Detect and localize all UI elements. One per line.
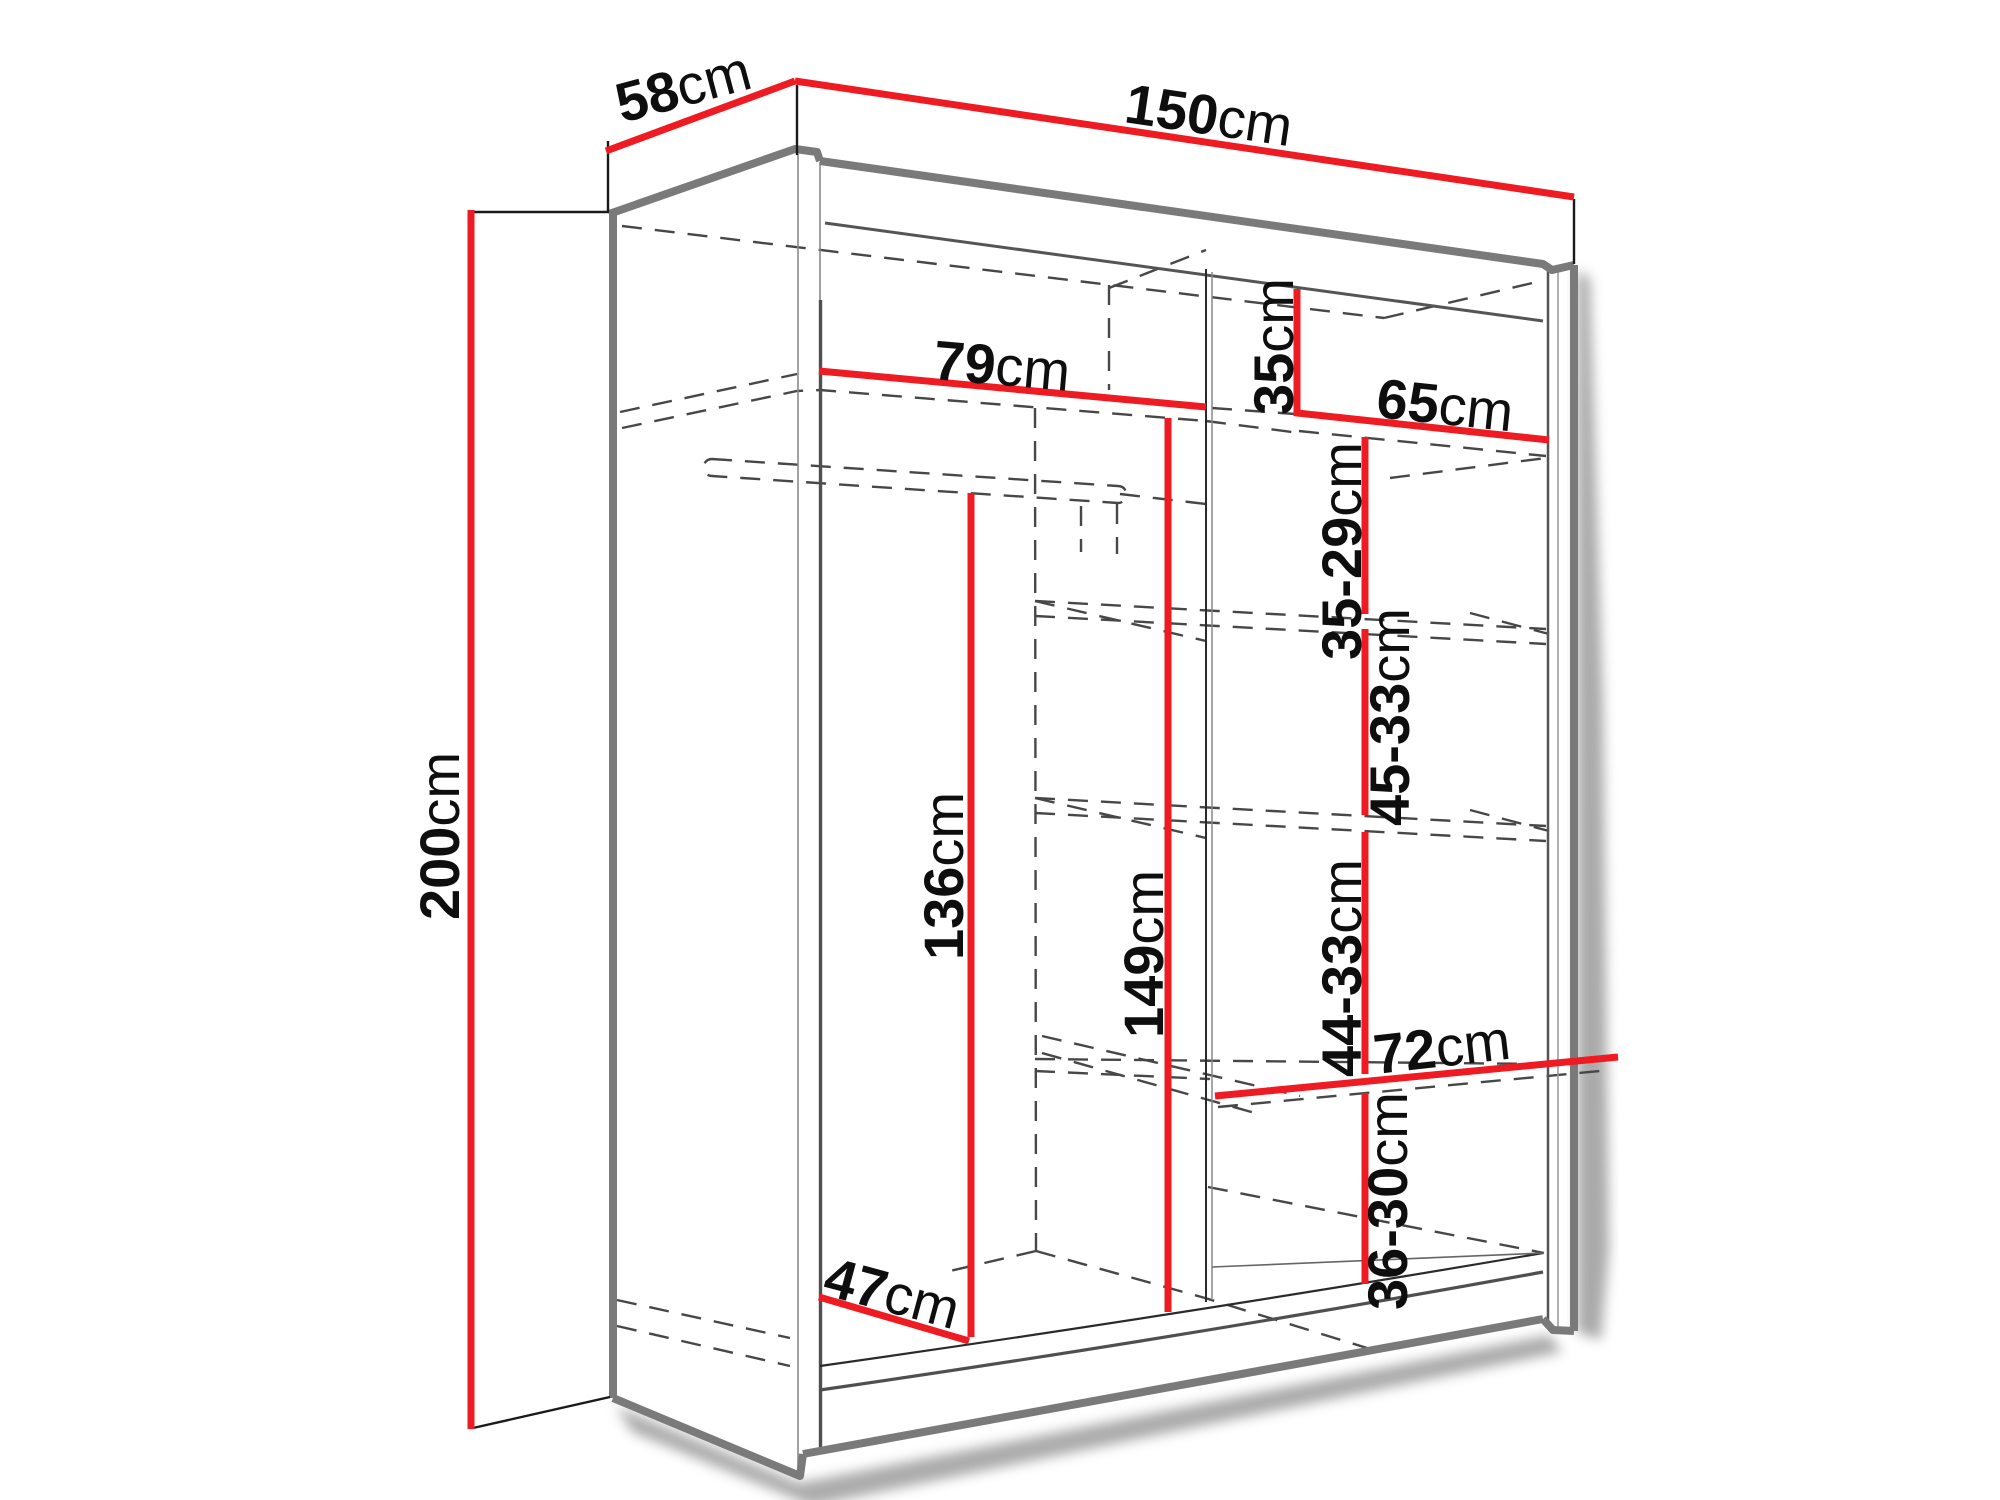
svg-text:200cm: 200cm bbox=[408, 752, 471, 920]
svg-text:35cm: 35cm bbox=[1242, 278, 1305, 415]
svg-text:44-33cm: 44-33cm bbox=[1310, 859, 1373, 1077]
svg-text:149cm: 149cm bbox=[1112, 870, 1175, 1038]
svg-text:79cm: 79cm bbox=[931, 328, 1073, 403]
svg-text:136cm: 136cm bbox=[912, 792, 975, 960]
svg-text:36-30cm: 36-30cm bbox=[1356, 1092, 1419, 1310]
svg-text:45-33cm: 45-33cm bbox=[1358, 608, 1421, 826]
